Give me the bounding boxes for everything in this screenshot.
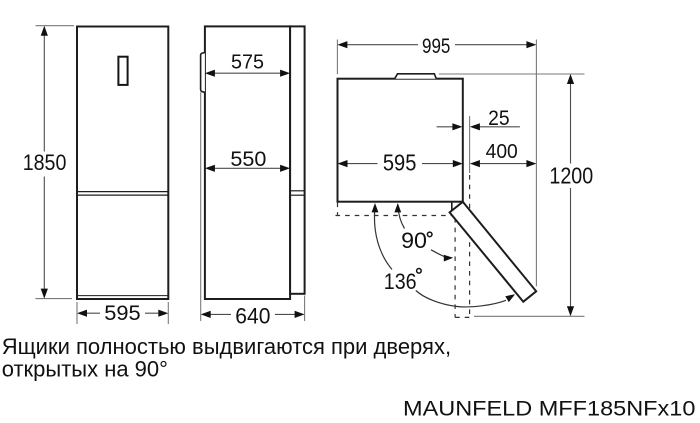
svg-text:1850: 1850 xyxy=(23,150,67,175)
svg-text:595: 595 xyxy=(104,301,140,325)
svg-text:MAUNFELD MFF185NFx10: MAUNFELD MFF185NFx10 xyxy=(403,396,695,421)
svg-text:открытых на 90°: открытых на 90° xyxy=(2,357,168,382)
svg-text:400: 400 xyxy=(486,140,518,163)
svg-text:575: 575 xyxy=(231,50,264,73)
svg-text:25: 25 xyxy=(488,106,510,130)
svg-text:995: 995 xyxy=(422,34,450,58)
svg-text:550: 550 xyxy=(230,147,266,171)
svg-text:136: 136 xyxy=(384,269,417,294)
svg-text:595: 595 xyxy=(383,150,417,176)
svg-text:640: 640 xyxy=(235,304,270,329)
svg-text:1200: 1200 xyxy=(549,163,593,189)
svg-text:90: 90 xyxy=(401,228,427,253)
svg-text:Ящики полностью выдвигаются пр: Ящики полностью выдвигаются при дверях, xyxy=(2,334,451,359)
